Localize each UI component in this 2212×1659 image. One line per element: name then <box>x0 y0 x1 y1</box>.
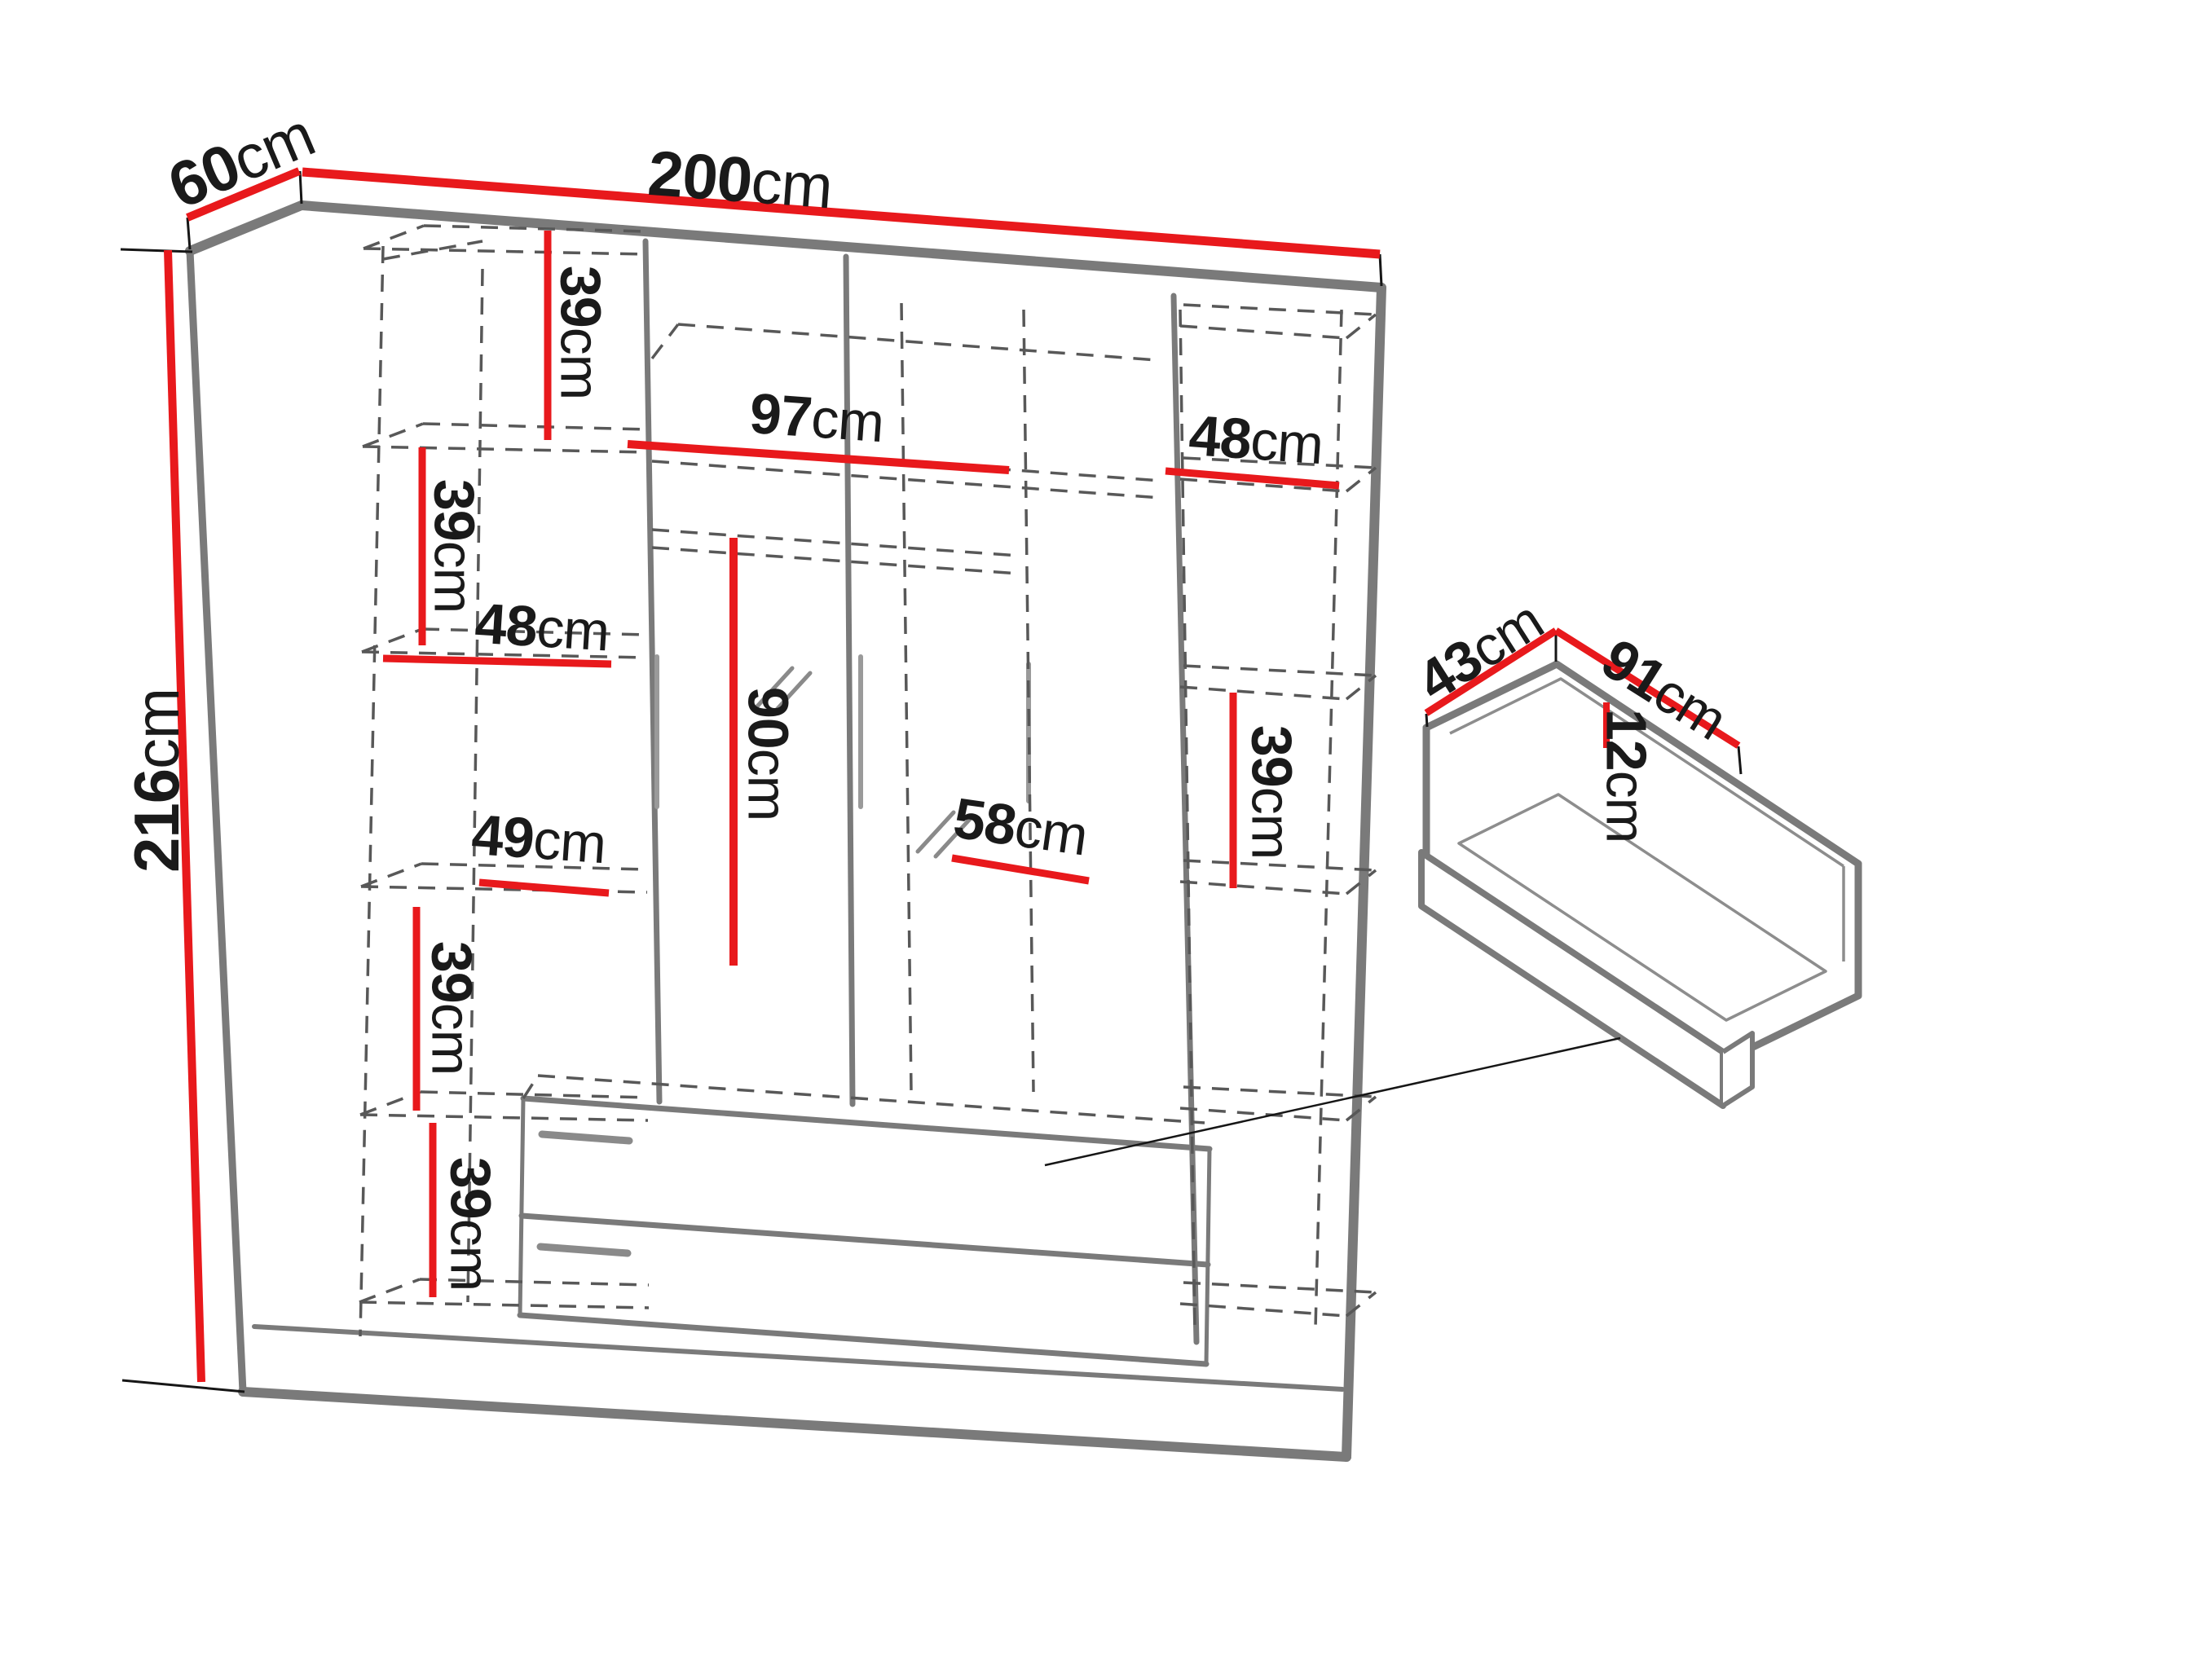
drawer-handles <box>540 1134 629 1253</box>
dim-label-height-216: 216cm <box>125 689 190 873</box>
dim-label-49: 49cm <box>470 806 608 873</box>
dim-label-48-right: 48cm <box>1188 407 1325 473</box>
dim-label-48-left: 48cm <box>474 595 610 661</box>
door-divider <box>846 257 853 1104</box>
dim-label-39-top: 39cm <box>552 266 610 399</box>
wardrobe-dimension-diagram: 60cm 200cm 216cm 39cm 39cm 48cm 49cm 39c… <box>0 0 2212 1659</box>
dim-label-90: 90cm <box>739 687 797 821</box>
dim-label-39-right: 39cm <box>1243 725 1301 859</box>
diagram-linework <box>0 0 2212 1659</box>
dim-label-97: 97cm <box>748 385 886 451</box>
wardrobe-partitions <box>646 241 1196 1342</box>
drawer-handle-icon <box>542 1134 629 1141</box>
dim-label-width-200: 200cm <box>646 141 834 219</box>
dim-label-39-upper: 39cm <box>425 479 483 613</box>
dim-label-39-lower: 39cm <box>423 941 481 1075</box>
door-handles <box>657 657 1029 807</box>
dim-label-39-bottom: 39cm <box>442 1157 500 1291</box>
detail-connector-line <box>1045 1038 1620 1165</box>
dim-label-drawer-12: 12cm <box>1597 709 1655 843</box>
drawer-handle-icon <box>540 1247 628 1253</box>
